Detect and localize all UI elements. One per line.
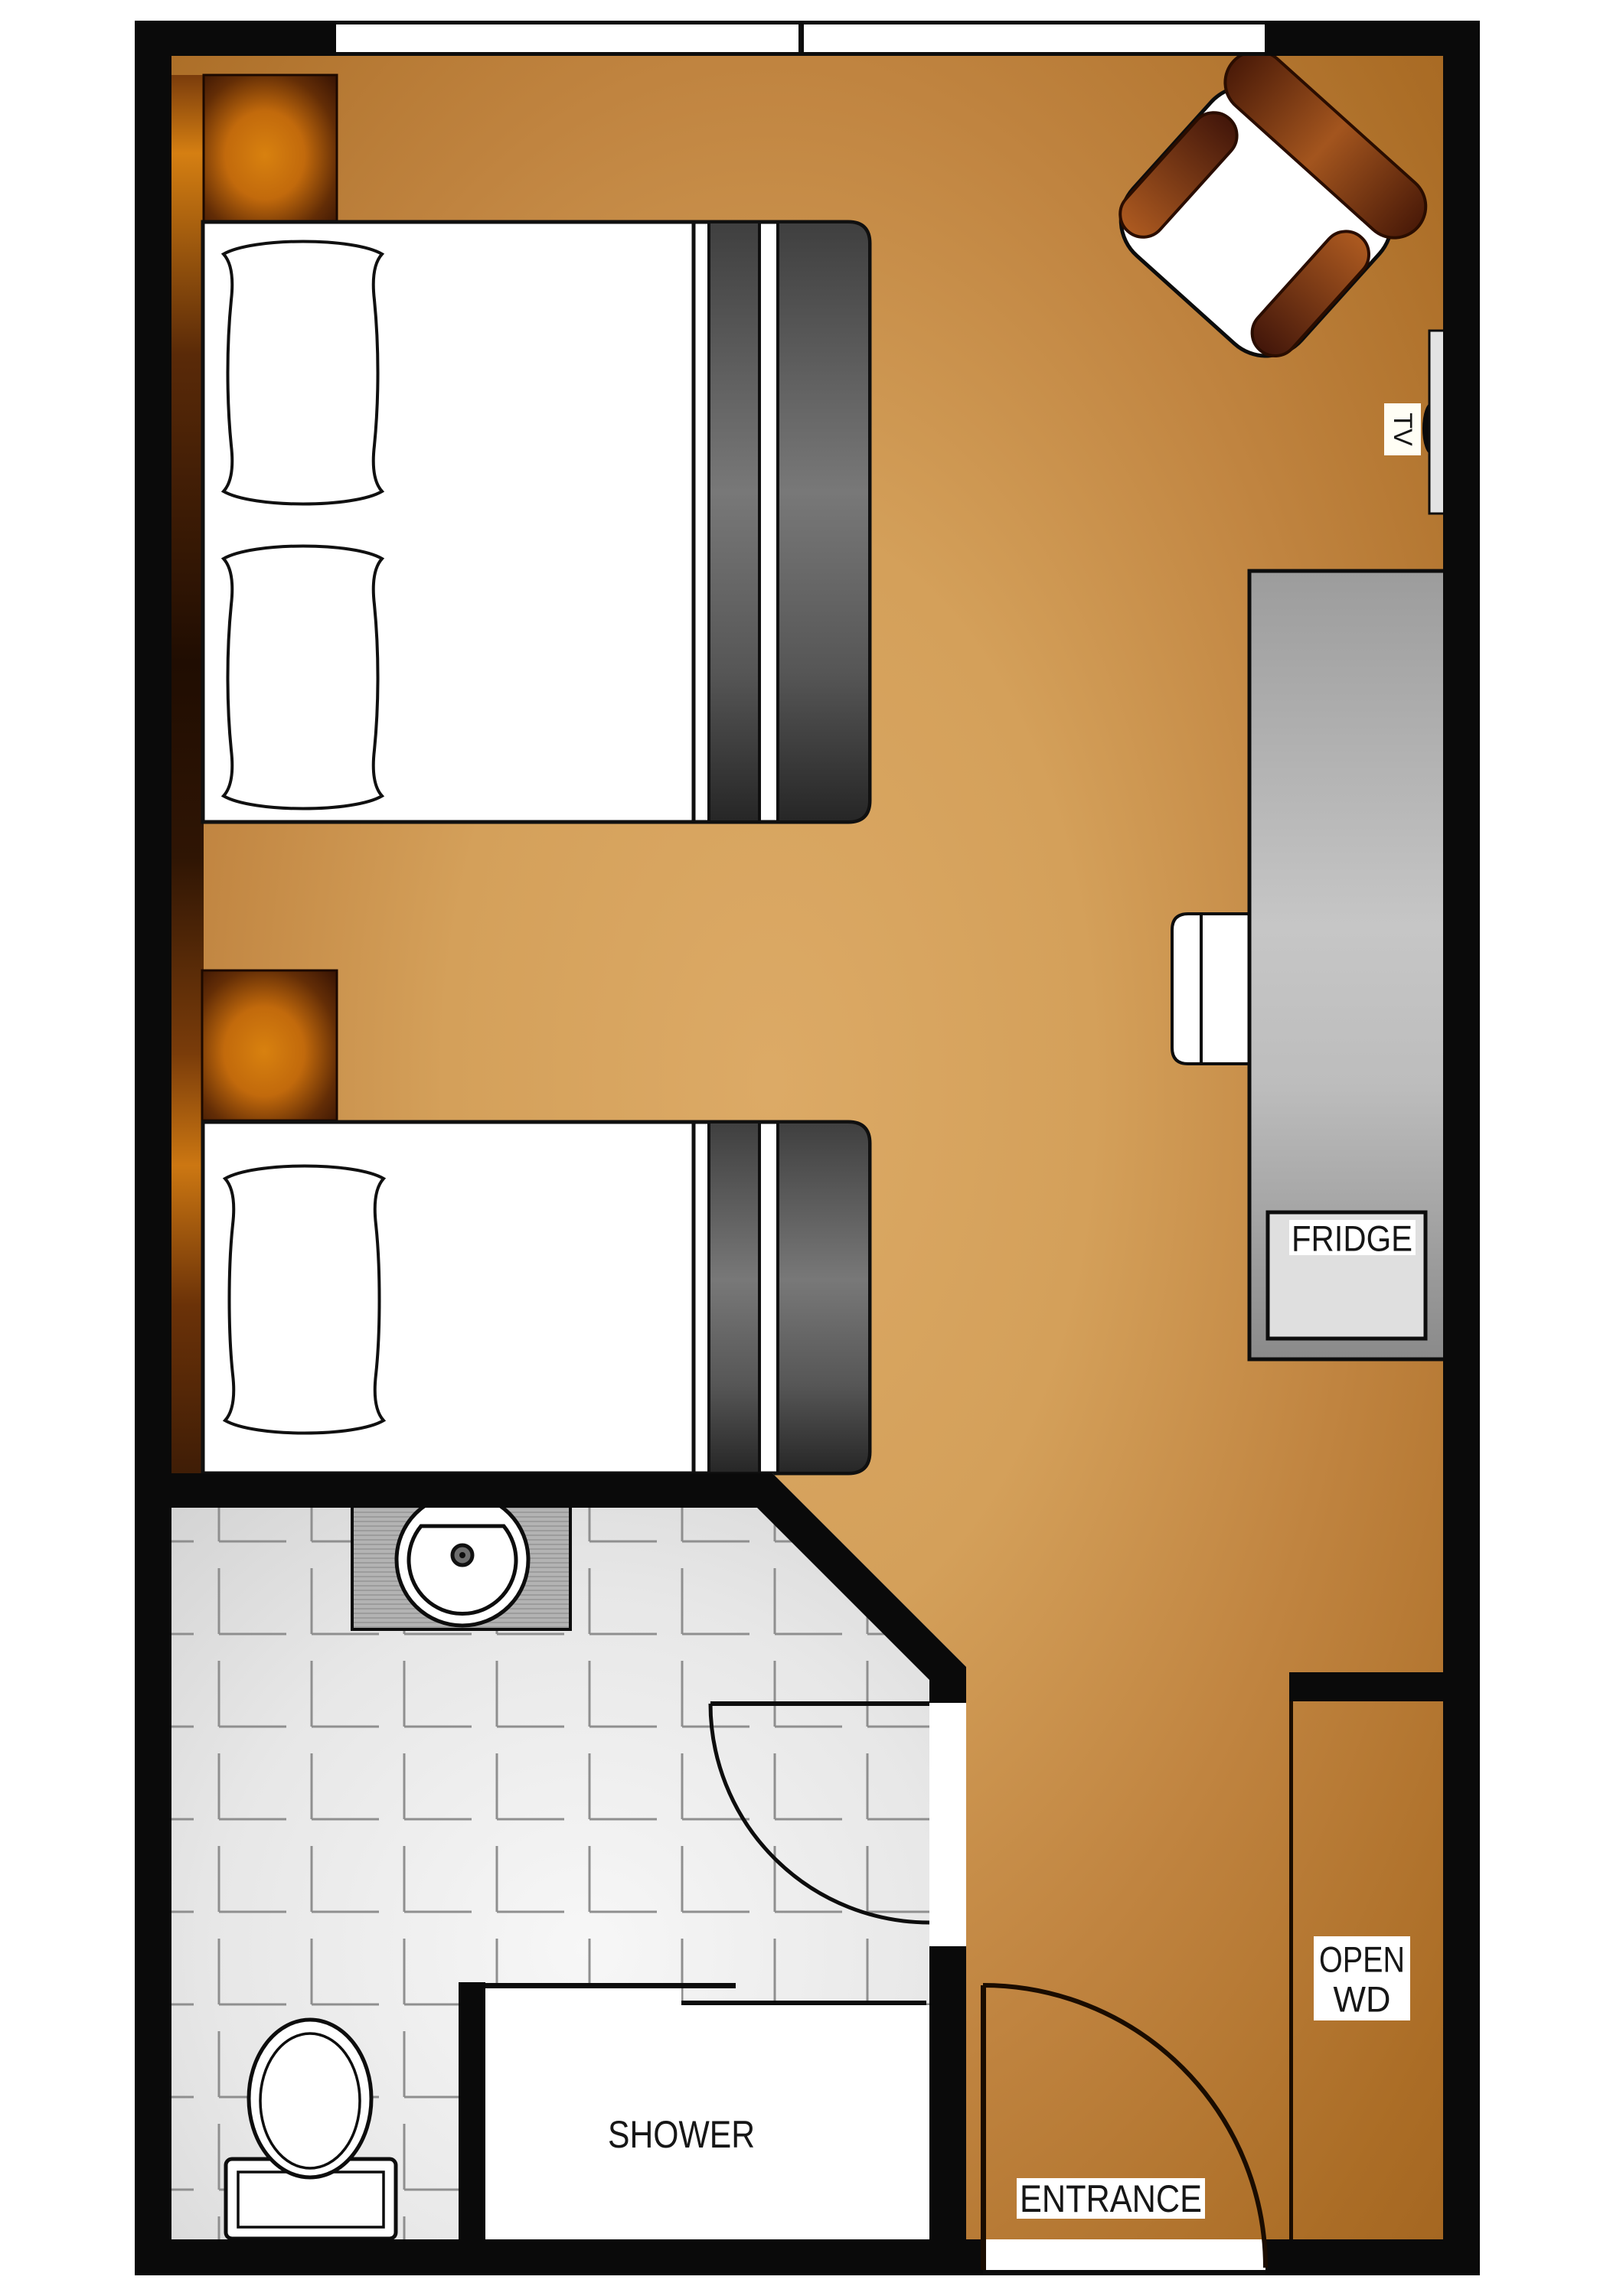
svg-text:SHOWER: SHOWER xyxy=(608,2113,755,2156)
svg-text:ENTRANCE: ENTRANCE xyxy=(1020,2177,1202,2220)
svg-text:OPEN: OPEN xyxy=(1319,1939,1405,1980)
svg-text:FRIDGE: FRIDGE xyxy=(1292,1218,1412,1259)
svg-text:WD: WD xyxy=(1334,1979,1391,2020)
svg-text:TV: TV xyxy=(1388,413,1417,446)
